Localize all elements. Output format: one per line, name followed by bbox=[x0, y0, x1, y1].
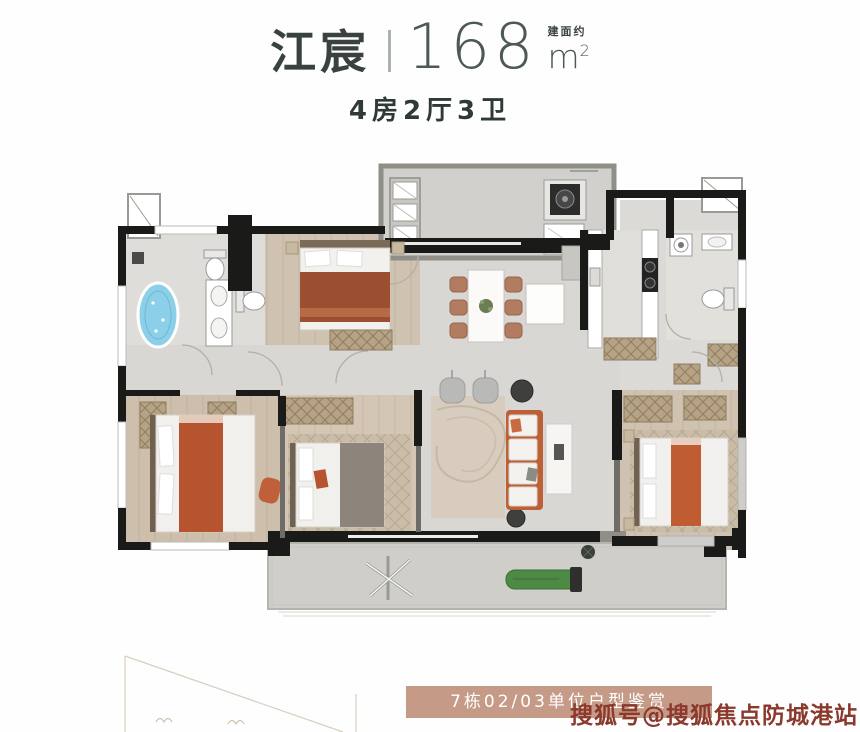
floor-plan bbox=[115, 138, 751, 644]
lounge-chair bbox=[506, 567, 582, 592]
bed bbox=[290, 443, 384, 527]
toilet bbox=[236, 290, 265, 312]
bed bbox=[300, 240, 390, 330]
divider-bar bbox=[388, 30, 391, 72]
bed bbox=[150, 415, 255, 532]
tv bbox=[554, 444, 564, 460]
watermark: 搜狐号@搜狐焦点防城港站 bbox=[570, 696, 858, 730]
tv-wall-line bbox=[348, 535, 478, 538]
title-row: 江宸 168 建面约 m2 bbox=[0, 20, 860, 75]
area-superscript: 2 bbox=[580, 41, 590, 60]
apartment-name: 江宸 bbox=[270, 29, 370, 75]
area-value: 168 bbox=[407, 20, 537, 75]
kitchen-sink bbox=[590, 268, 600, 286]
bed bbox=[634, 438, 728, 526]
area-unit: m2 bbox=[548, 40, 590, 73]
room-layout-label: 4房2厅3卫 bbox=[0, 90, 860, 127]
wardrobe bbox=[684, 396, 726, 420]
page: 江宸 168 建面约 m2 4房2厅3卫 bbox=[0, 0, 860, 732]
toilet bbox=[702, 288, 734, 310]
kitchen-island bbox=[526, 284, 564, 324]
header: 江宸 168 建面约 m2 4房2厅3卫 bbox=[0, 20, 860, 127]
hall-closet bbox=[604, 338, 656, 360]
wardrobe bbox=[624, 396, 672, 422]
area-unit-block: 建面约 m2 bbox=[548, 23, 590, 73]
wardrobe bbox=[330, 330, 392, 350]
side-table bbox=[507, 509, 525, 527]
shower-fixture bbox=[132, 252, 144, 264]
wardrobe bbox=[285, 398, 353, 424]
bathtub bbox=[138, 283, 178, 347]
side-table bbox=[511, 380, 533, 402]
decorative-sketch bbox=[98, 636, 398, 732]
toilet bbox=[204, 250, 226, 280]
sofa bbox=[506, 410, 543, 510]
terrace bbox=[381, 166, 614, 258]
